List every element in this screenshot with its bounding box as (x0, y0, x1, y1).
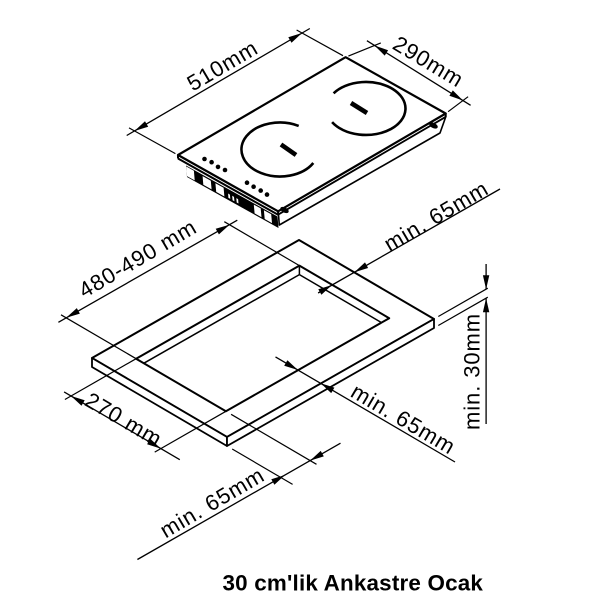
svg-text:min. 65mm: min. 65mm (155, 462, 268, 543)
svg-text:480-490 mm: 480-490 mm (74, 214, 201, 303)
svg-text:min. 30mm: min. 30mm (460, 313, 485, 430)
svg-text:min. 65mm: min. 65mm (379, 176, 492, 257)
svg-text:30 cm'lik Ankastre Ocak: 30 cm'lik Ankastre Ocak (223, 571, 484, 596)
svg-text:min. 65mm: min. 65mm (347, 379, 460, 460)
svg-text:510mm: 510mm (183, 35, 263, 96)
